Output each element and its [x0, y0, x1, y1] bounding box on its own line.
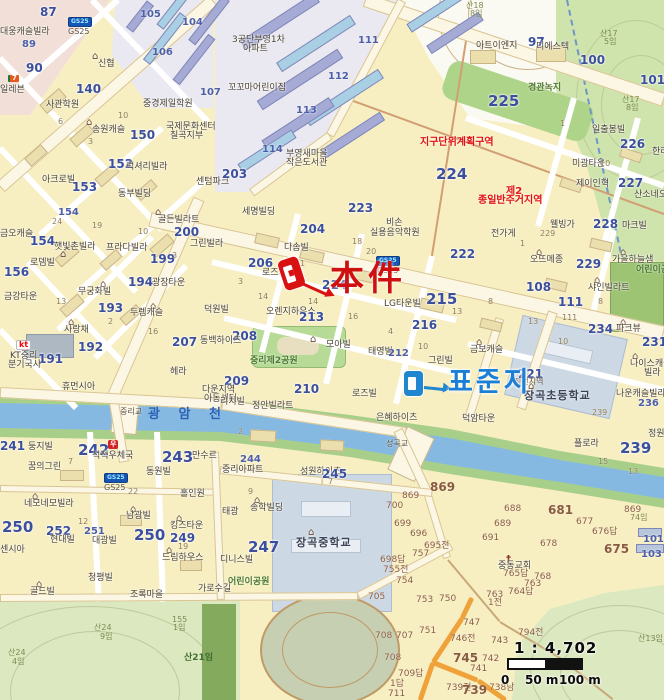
map-label: 무궁화빌 [78, 288, 111, 297]
map-label: 111 [358, 36, 379, 46]
map-label: 정안빌라트 [252, 402, 293, 411]
map-label: 12 [78, 518, 88, 526]
map-label: 114 [262, 145, 283, 155]
map-label: 105 [140, 10, 161, 20]
map-label: 113 [296, 106, 317, 116]
map-label: 231 [642, 336, 664, 348]
map-label: 헤라 [170, 368, 187, 377]
map-label: 107 [200, 88, 221, 98]
map-label: 104 [182, 18, 203, 28]
map-label: 794전 [518, 629, 543, 638]
map-label: 중경제일학원 [143, 100, 193, 109]
map-label: 장곡초등학교 [524, 390, 591, 401]
map-label: 19 [178, 543, 188, 551]
map-label: 15 [598, 458, 608, 466]
map-label: 229 [576, 258, 601, 270]
map-label: 7 [328, 478, 333, 486]
map-label: 223 [348, 202, 373, 214]
map-label: 덕암타운 [462, 415, 495, 424]
map-label: 네모네모빌라 [24, 500, 74, 509]
map-label: 13 [452, 308, 462, 316]
map-label: GS25 [104, 484, 125, 492]
map-label: 154 [30, 235, 55, 247]
map-label: 19 [92, 222, 102, 230]
map-label: 90 [26, 62, 43, 74]
standard-lot-shape [408, 377, 416, 390]
map-label: 100 [580, 54, 605, 66]
map-label: 753 [416, 596, 433, 605]
map-label: 1 [560, 120, 565, 128]
map-label: 2 [238, 428, 243, 436]
cadastral-map[interactable]: 87GS25GS25대웅캐슬빌라89907일레븐105104106107⌂신협1… [0, 0, 664, 700]
map-label: LG타운빌 [384, 300, 421, 309]
map-label: 광 암 천 [148, 408, 228, 421]
map-label: 신협 [98, 60, 115, 69]
map-label: 1답 [390, 680, 404, 689]
map-label: 마크빌 [622, 222, 647, 231]
map-label: 10 [418, 343, 428, 351]
map-label: 13 [56, 298, 66, 306]
map-label: 로뎀빌 [30, 259, 55, 268]
map-label: 8 [488, 298, 493, 306]
map-label: 745 [453, 652, 478, 664]
map-label: 사랑채 [64, 326, 89, 335]
map-label: 754 [396, 577, 413, 586]
map-label: 4 [388, 328, 393, 336]
map-label: 송학빌딩 [250, 504, 283, 513]
map-label: 대웅캐슬빌라 [0, 28, 50, 37]
map-label: 869 [402, 492, 419, 501]
map-label: 746전 [450, 635, 475, 644]
map-label: 711 [388, 690, 405, 699]
map-label: 3 [238, 278, 243, 286]
map-label: 699 [394, 520, 411, 529]
map-label: 다솜빌 [284, 244, 309, 253]
map-label: 681 [548, 504, 573, 516]
map-label: 중리교 [120, 408, 142, 416]
map-label: 동백하이츠 [200, 337, 241, 346]
map-label: 691 [482, 534, 499, 543]
map-label: 245 [322, 468, 347, 480]
map-label: 739 [462, 684, 487, 696]
map-label: 140 [76, 83, 101, 95]
map-label: 239 [592, 409, 607, 417]
map-label: 1 [520, 240, 525, 248]
map-label: 210 [294, 383, 319, 395]
map-label: 빌라 [644, 369, 661, 378]
map-label: 678 [540, 540, 557, 549]
map-label: 산21임 [184, 654, 213, 663]
map-label: 4임 [12, 658, 24, 666]
map-label: 10 [118, 112, 128, 120]
map-label: 700 [386, 502, 403, 511]
forest-dark-patch [202, 604, 236, 700]
map-label: 16 [348, 313, 358, 321]
map-label: 677 [576, 518, 593, 527]
standard-lot-label: 표준지 [448, 369, 532, 396]
map-label: 738남 [489, 684, 514, 693]
map-label: 241 [0, 440, 25, 452]
map-label: 두렘캐슬 [130, 309, 163, 318]
map-label: 어린이공원 [228, 578, 269, 587]
post-office-icon: 우 [108, 440, 118, 449]
map-label: 1임 [173, 624, 185, 632]
map-label: 전가게 [491, 230, 516, 239]
map-label: 중리아파트 [222, 466, 263, 475]
map-label: 성곡교 [386, 440, 408, 448]
map-label: 가을하늘샘 [612, 256, 653, 265]
map-label: 9임 [100, 633, 112, 641]
map-label: 13 [628, 468, 638, 476]
map-label: 1 [300, 260, 305, 268]
map-label: 74임 [630, 514, 648, 522]
map-label: 200 [174, 226, 199, 238]
map-label: 한라 [652, 148, 664, 157]
map-label: 둥지빌 [28, 443, 53, 452]
map-label: 111 [562, 314, 577, 322]
map-label: 로즈빌 [352, 390, 377, 399]
map-label: 216 [412, 319, 437, 331]
map-label: 225 [488, 94, 519, 109]
map-label: 파크뷰 [616, 325, 641, 334]
map-label: 금보캐슬 [470, 346, 503, 355]
map-label: 동원빌 [146, 468, 171, 477]
map-label: 실용음악학원 [370, 229, 420, 238]
map-label: 24 [52, 218, 62, 226]
map-label: 250 [134, 528, 165, 543]
standard-lot-marker [404, 371, 423, 396]
map-label: 일레븐 [0, 86, 25, 95]
map-label: 675 [604, 543, 629, 555]
map-label: GS25 [68, 28, 89, 36]
map-label: 청평빌 [88, 574, 113, 583]
map-label: 골든빌라트 [158, 216, 199, 225]
map-label: 비손 [386, 219, 403, 228]
map-label: 제이인혁 [576, 180, 609, 189]
map-label: 현대빌 [50, 536, 75, 545]
map-label: 751 [419, 627, 436, 636]
map-label: 250 [2, 520, 33, 535]
map-label: 만수르 [192, 452, 217, 461]
map-label: 193 [98, 302, 123, 314]
map-label: 샤인빌라트 [588, 284, 629, 293]
map-label: 228 [593, 218, 618, 230]
map-label: 8임 [470, 10, 482, 18]
map-label: 7 [68, 458, 73, 466]
map-label: 22 [128, 488, 138, 496]
map-label: 금오캐슬 [0, 230, 33, 239]
map-label: 아트이엔지 [476, 42, 517, 51]
map-label: 229 [540, 230, 555, 238]
map-label: 215 [426, 292, 457, 307]
map-label: 108 [526, 281, 551, 293]
map-label: 247 [248, 540, 279, 555]
map-label: 244 [240, 455, 261, 465]
map-label: 센시아 [0, 546, 25, 555]
map-label: 아파트 [243, 45, 268, 54]
map-label: 688 [504, 505, 521, 514]
map-label: 757 [412, 550, 429, 559]
map-label: 5임 [604, 38, 616, 46]
map-label: 13 [528, 318, 538, 326]
map-label: 204 [300, 223, 325, 235]
map-label: 6 [58, 118, 63, 126]
map-label: 송원캐슬 [92, 126, 125, 135]
map-label: 칠곡지부 [170, 132, 203, 141]
map-label: 프라다빌라 [106, 244, 147, 253]
map-label: 10 [138, 228, 148, 236]
map-label: 709답 [398, 670, 423, 679]
building [250, 429, 277, 442]
map-label: 정원 [648, 430, 664, 439]
map-label: 765답 [503, 570, 528, 579]
map-label: 분기국사 [8, 361, 41, 370]
building [320, 439, 345, 451]
map-label: 조록마을 [130, 591, 163, 600]
map-label: 산소네오 [634, 191, 664, 200]
map-label: 광장타운 [152, 279, 185, 288]
map-label: 휴먼시아 [62, 383, 95, 392]
building-icon: ⌂ [310, 335, 316, 345]
map-label: 234 [588, 323, 613, 335]
map-label: 689 [494, 520, 511, 529]
map-label: 747 [463, 619, 480, 628]
seven-eleven-icon: 7 [8, 75, 19, 82]
map-label: 212 [388, 349, 409, 359]
map-label: 750 [439, 595, 456, 604]
map-label: 대광빌 [92, 537, 117, 546]
map-label: 석적우체국 [92, 452, 133, 461]
map-label: 경관녹지 [528, 84, 561, 93]
map-label: 킹즈타운 [170, 522, 203, 531]
map-label: 20 [366, 248, 376, 256]
map-label: 708 [375, 632, 392, 641]
map-label: 어린이공원 [636, 266, 664, 275]
kt-badge: kt [16, 340, 31, 350]
map-label: 676답 [592, 528, 617, 537]
map-label: 742 [482, 655, 499, 664]
map-label: 가로수길 [198, 585, 231, 594]
map-label: 8임 [626, 104, 638, 112]
map-label: 741 [470, 665, 487, 674]
map-label: 207 [172, 336, 197, 348]
map-label: 708 [384, 654, 401, 663]
map-label: 홀인원 [180, 490, 205, 499]
map-label: 아크로빌 [42, 176, 75, 185]
map-label: 장곡중학교 [296, 537, 352, 548]
map-label: 3 [172, 252, 177, 260]
school-field-oval [260, 594, 400, 700]
map-label: 8 [598, 298, 603, 306]
map-label: 213 [299, 311, 324, 323]
map-label: 9 [248, 488, 253, 496]
map-label: 모아빌 [326, 341, 351, 350]
map-label: 디에스텍 [536, 43, 569, 52]
map-label: 꼬꼬마어린이집 [228, 84, 286, 93]
map-label: 16 [148, 328, 158, 336]
map-label: 227 [618, 177, 643, 189]
map-label: 222 [450, 248, 475, 260]
gs25-badge: GS25 [68, 17, 92, 27]
map-label: 지구단위계획구역 [420, 138, 494, 148]
map-label: 태광 [222, 508, 239, 517]
map-label: 남광빌 [126, 512, 151, 521]
map-label: 1전 [488, 599, 502, 608]
subject-label: 本件 [330, 262, 406, 296]
map-label: 764답 [508, 588, 533, 597]
map-label: 14 [258, 293, 268, 301]
map-label: 18 [352, 238, 362, 246]
map-label: 디니스빌 [220, 556, 253, 565]
map-label: 89 [22, 40, 36, 50]
map-label: 14 [308, 298, 318, 306]
map-label: 150 [130, 129, 155, 141]
map-label: 10 [558, 338, 568, 346]
map-label: 금강타운 [4, 293, 37, 302]
map-label: 산24 [94, 624, 112, 632]
map-label: 리치빌 [220, 398, 245, 407]
map-label: 236 [638, 399, 659, 409]
map-label: 덕원빌 [204, 306, 229, 315]
map-label: 중리제2공원 [250, 357, 298, 366]
map-label: 오뜨메종 [530, 256, 563, 265]
map-label: 191 [38, 353, 63, 365]
map-label: 87 [40, 6, 57, 18]
map-label: 192 [78, 341, 103, 353]
building [60, 470, 84, 481]
map-label: 111 [558, 296, 583, 308]
map-label: 112 [328, 72, 349, 82]
map-label: 103 [641, 550, 662, 560]
map-label: 골드빌 [30, 588, 55, 597]
map-label: 럭셔리빌라 [126, 163, 167, 172]
map-label: 사관학원 [46, 101, 79, 110]
map-label: 153 [72, 181, 97, 193]
map-label: 일출봉빌 [592, 126, 625, 135]
map-label: 은혜하이츠 [376, 414, 417, 423]
map-label: 3 [88, 138, 93, 146]
map-label: 243 [162, 450, 193, 465]
map-label: 종일반주거지역 [478, 196, 542, 206]
map-label: 156 [4, 266, 29, 278]
map-label: 10 [600, 160, 610, 168]
map-label: 698답 [380, 556, 405, 565]
map-label: 동부빌딩 [118, 190, 151, 199]
map-label: 696 [410, 530, 427, 539]
map-label: 203 [222, 168, 247, 180]
map-label: 2 [108, 318, 113, 326]
map-label: 그린빌라 [190, 240, 223, 249]
map-label: 743 [491, 637, 508, 646]
map-label: 드림하우스 [162, 554, 203, 563]
map-label: 755전 [383, 566, 408, 575]
map-label: 224 [436, 167, 467, 182]
map-label: 작은도서관 [286, 159, 327, 168]
gs25-badge: GS25 [104, 473, 128, 483]
building [470, 50, 496, 64]
building-icon: ⌂ [60, 250, 66, 260]
map-label: 그린빌 [428, 357, 453, 366]
map-label: 106 [152, 48, 173, 58]
map-label: 산13임 [638, 635, 663, 643]
map-label: 869 [430, 481, 455, 493]
map-label: 707 [396, 632, 413, 641]
map-label: 194 [128, 276, 153, 288]
map-label: 플로라 [574, 440, 599, 449]
map-label: 705 [368, 593, 385, 602]
map-label: 세명빌딩 [242, 208, 275, 217]
map-label: 226 [620, 138, 645, 150]
map-label: 꿈의그린 [28, 463, 61, 472]
map-label: 101 [640, 74, 664, 86]
map-label: 239 [620, 441, 651, 456]
map-label: 산24 [8, 649, 26, 657]
map-label: 101 [643, 535, 664, 545]
